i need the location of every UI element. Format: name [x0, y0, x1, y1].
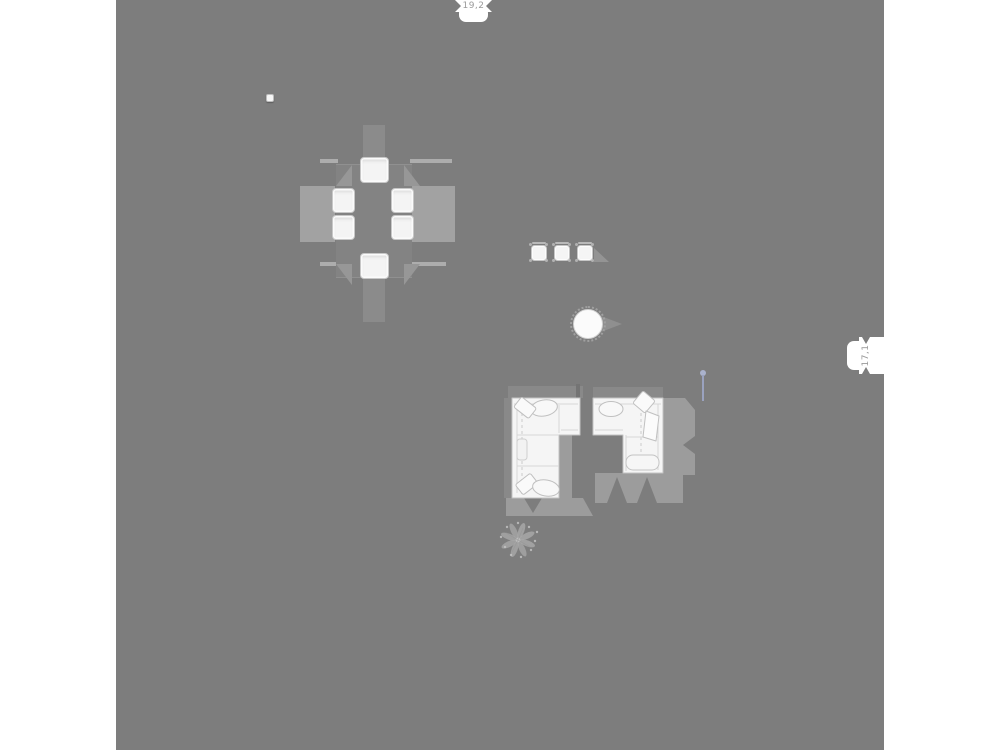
- table-edge-line: [410, 159, 452, 163]
- stool-seat: [554, 245, 570, 261]
- bar-stool-3[interactable]: [577, 245, 593, 261]
- stool-seat: [531, 245, 547, 261]
- stool-back: [578, 242, 592, 244]
- dining-chair-right-2[interactable]: [391, 215, 414, 240]
- chair-shadow: [404, 264, 420, 285]
- page: { "plan": { "dimension_labels": { "top":…: [0, 0, 1000, 750]
- stool-shadow: [594, 248, 609, 262]
- dining-chair-top[interactable]: [360, 157, 389, 183]
- sofa-shadow: [508, 386, 583, 398]
- chair-shadow: [404, 165, 420, 186]
- stool-back: [532, 242, 546, 244]
- dining-shadow-right: [412, 186, 455, 242]
- bar-stool-1[interactable]: [531, 245, 547, 261]
- sofa-right[interactable]: [593, 391, 663, 473]
- dimension-tag-right[interactable]: 17,1: [847, 337, 884, 374]
- dining-chair-bottom[interactable]: [360, 253, 389, 279]
- dining-shadow-bottom: [363, 277, 385, 322]
- dimension-label-right: 17,1: [847, 337, 884, 374]
- potted-plant[interactable]: [493, 517, 543, 563]
- dimension-tag-top[interactable]: 19,2: [455, 0, 492, 23]
- stool-seat: [577, 245, 593, 261]
- sofa-shadow: [593, 387, 663, 398]
- dining-chair-left-2[interactable]: [332, 215, 355, 240]
- round-side-table[interactable]: [570, 306, 622, 342]
- marker-dot[interactable]: [266, 94, 274, 102]
- dining-set[interactable]: [300, 125, 456, 325]
- sofa-group: [500, 383, 710, 533]
- round-table-top: [573, 309, 603, 339]
- stool-back: [555, 242, 569, 244]
- bar-stools[interactable]: [528, 240, 610, 266]
- dining-chair-left-1[interactable]: [332, 188, 355, 213]
- plant-foliage: [500, 522, 538, 558]
- dining-chair-right-1[interactable]: [391, 188, 414, 213]
- table-edge-line: [320, 159, 338, 163]
- bar-stool-2[interactable]: [554, 245, 570, 261]
- floor-plan-canvas[interactable]: 19,2 17,1: [116, 0, 884, 750]
- dimension-label-top: 19,2: [455, 1, 492, 11]
- dining-shadow-left: [300, 186, 335, 242]
